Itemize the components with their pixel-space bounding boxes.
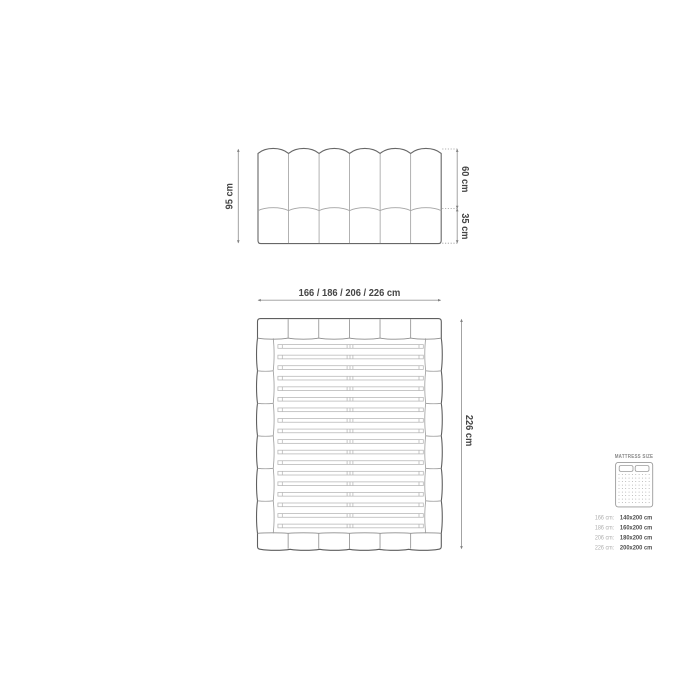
- svg-text:140x200 cm: 140x200 cm: [620, 514, 653, 522]
- svg-text:226 cm:: 226 cm:: [595, 544, 615, 552]
- svg-text:186 cm:: 186 cm:: [595, 524, 615, 532]
- svg-text:MATTRESS SIZE: MATTRESS SIZE: [615, 454, 654, 461]
- svg-text:95 cm: 95 cm: [224, 183, 235, 209]
- svg-text:166 / 186 / 206 / 226 cm: 166 / 186 / 206 / 226 cm: [299, 287, 401, 299]
- svg-text:180x200 cm: 180x200 cm: [620, 534, 653, 542]
- svg-text:206 cm:: 206 cm:: [595, 534, 615, 542]
- svg-text:166 cm:: 166 cm:: [595, 514, 615, 522]
- svg-text:226 cm: 226 cm: [463, 415, 474, 446]
- svg-text:35 cm: 35 cm: [459, 213, 470, 239]
- svg-text:160x200 cm: 160x200 cm: [620, 524, 653, 532]
- svg-text:60 cm: 60 cm: [459, 166, 470, 192]
- svg-text:200x200 cm: 200x200 cm: [620, 544, 653, 552]
